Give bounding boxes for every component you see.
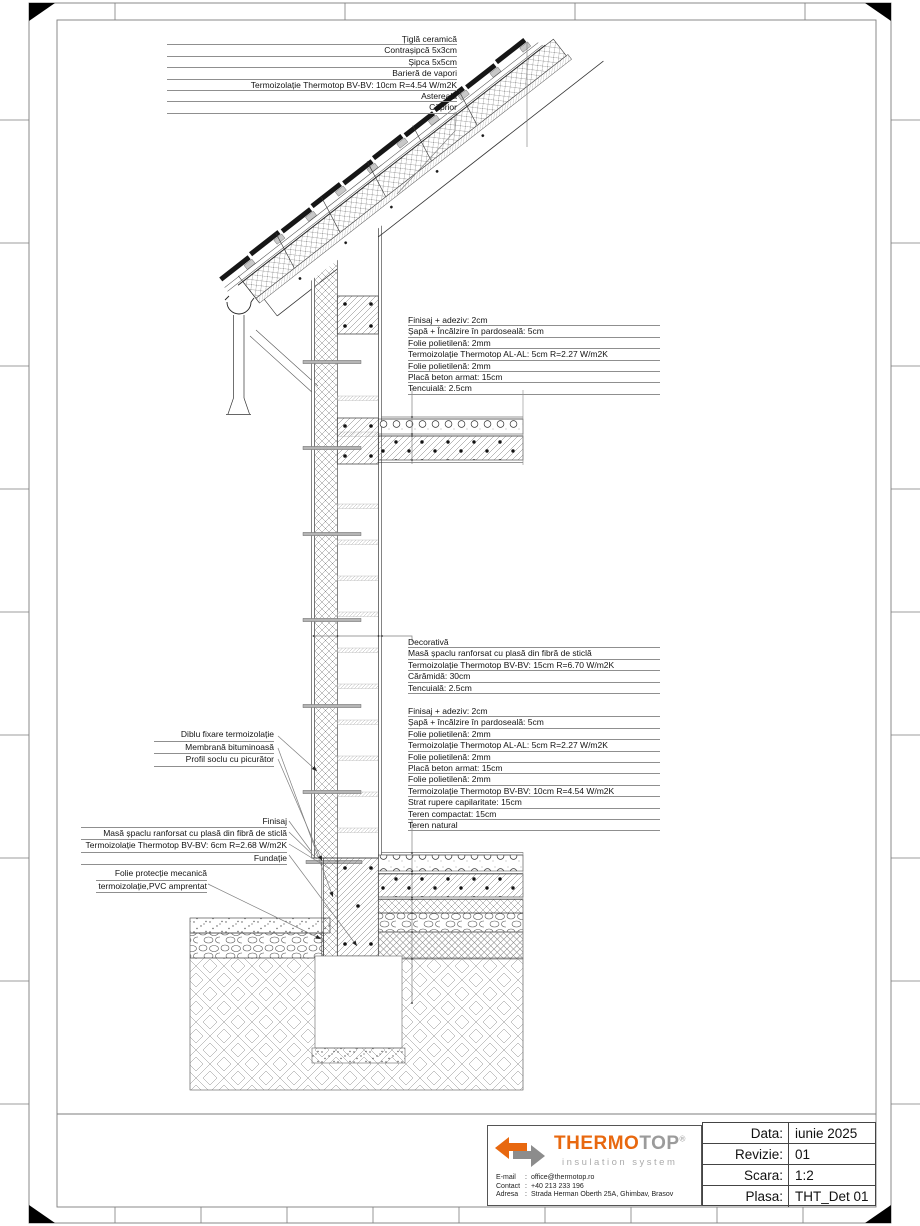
contact-phone-row: Contact:+40 213 233 196 xyxy=(496,1183,673,1192)
brand-name-primary: THERMO xyxy=(554,1133,639,1154)
annotation-line: Profil soclu cu picurător xyxy=(154,754,274,767)
annotation-line: Diblu fixare termoizolație xyxy=(154,729,274,742)
title-block-logo-panel: THERMOTOP® insulation system E-mail:offi… xyxy=(487,1125,702,1206)
contact-phone-value: +40 213 233 196 xyxy=(531,1183,584,1190)
detail-drawing xyxy=(0,0,920,1226)
downspout xyxy=(226,315,251,415)
ground-floor-layers-annotation: Finisaj + adeziv: 2cmȘapă + încălzire în… xyxy=(408,706,660,831)
annotation-line: Finisaj + adeziv: 2cm xyxy=(408,315,660,326)
annotation-line: Masă șpaclu ranforsat cu plasă din fibră… xyxy=(408,648,660,659)
annotation-line: Termoizolație Thermotop BV-BV: 6cm R=2.6… xyxy=(81,840,287,852)
annotation-line: Teren compactat: 15cm xyxy=(408,809,660,820)
annotation-line: Folie polietilenă: 2mm xyxy=(408,752,660,763)
title-block-info-table: Data: iunie 2025 Revizie: 01 Scara: 1:2 … xyxy=(702,1122,876,1206)
annotation-line: Termoizolație Thermotop AL-AL: 5cm R=2.2… xyxy=(408,349,660,360)
annotation-line: Termoizolație Thermotop AL-AL: 5cm R=2.2… xyxy=(408,740,660,751)
annotation-line: Folie protecție mecanică xyxy=(96,868,207,881)
upper-floor-slab xyxy=(378,417,523,463)
thermotop-logo-icon xyxy=(494,1135,546,1169)
contact-email-value: office@thermotop.ro xyxy=(531,1174,594,1181)
annotation-line: Astereală xyxy=(167,91,457,102)
annotation-line: Folie polietilenă: 2mm xyxy=(408,729,660,740)
fixing-labels-annotation: Diblu fixare termoizolațieMembrană bitum… xyxy=(154,729,274,767)
annotation-line: Șapă + încălzire în pardoseală: 5cm xyxy=(408,717,660,728)
annotation-line: Strat rupere capilaritate: 15cm xyxy=(408,797,660,808)
annotation-line: Țiglă ceramică xyxy=(167,34,457,45)
roof-layers-annotation: Țiglă ceramicăContrașipcă 5x3cmȘipca 5x5… xyxy=(167,34,457,114)
foundation-beam xyxy=(337,858,378,956)
annotation-line: Masă șpaclu ranforsat cu plasă din fibră… xyxy=(81,828,287,840)
annotation-line: Termoizolație Thermotop BV-BV: 15cm R=6.… xyxy=(408,660,660,671)
info-row-scale: Scara: 1:2 xyxy=(703,1165,875,1186)
ring-beam-floor xyxy=(337,418,378,464)
annotation-line: termoizolație,PVC amprentat xyxy=(96,881,207,894)
annotation-line: Termoizolație Thermotop BV-BV: 10cm R=4.… xyxy=(167,80,457,91)
annotation-line: Decorativă xyxy=(408,637,660,648)
annotation-line: Membrană bituminoasă xyxy=(154,742,274,755)
brand-name: THERMOTOP® xyxy=(554,1133,686,1155)
annotation-line: Placă beton armat: 15cm xyxy=(408,763,660,774)
annotation-line: Folie polietilenă: 2mm xyxy=(408,774,660,785)
annotation-line: Barieră de vapori xyxy=(167,68,457,79)
foundation-footing xyxy=(312,1048,405,1063)
registered-mark: ® xyxy=(680,1135,686,1144)
exterior-ground xyxy=(190,918,330,958)
annotation-line: Placă beton armat: 15cm xyxy=(408,372,660,383)
annotation-line: Contrașipcă 5x3cm xyxy=(167,45,457,56)
upper-floor-layers-annotation: Finisaj + adeziv: 2cmȘapă + Încălzire în… xyxy=(408,315,660,395)
protection-foil-annotation: Folie protecție mecanicătermoizolație,PV… xyxy=(96,868,207,893)
drawing-sheet: Țiglă ceramicăContrașipcă 5x3cmȘipca 5x5… xyxy=(0,0,920,1226)
info-row-revision: Revizie: 01 xyxy=(703,1144,875,1165)
brand-name-secondary: TOP xyxy=(639,1133,679,1154)
natural-soil xyxy=(190,956,523,1090)
contact-address-row: Adresa:Strada Herman Oberth 25A, Ghimbav… xyxy=(496,1191,673,1200)
annotation-line: Termoizolație Thermotop BV-BV: 10cm R=4.… xyxy=(408,786,660,797)
contact-info: E-mail:office@thermotop.ro Contact:+40 2… xyxy=(496,1174,673,1200)
ground-floor-slab xyxy=(378,853,523,960)
info-row-date: Data: iunie 2025 xyxy=(703,1123,875,1144)
info-row-sheet: Plasa: THT_Det 01 xyxy=(703,1186,875,1207)
annotation-line: Folie polietilenă: 2mm xyxy=(408,361,660,372)
annotation-line: Fundație xyxy=(81,853,287,865)
foundation-body xyxy=(315,956,402,1048)
annotation-line: Finisaj xyxy=(81,816,287,828)
annotation-line: Folie polietilenă: 2mm xyxy=(408,338,660,349)
annotation-line: Căprior xyxy=(167,102,457,113)
wall-layers-annotation: DecorativăMasă șpaclu ranforsat cu plasă… xyxy=(408,637,660,694)
annotation-line: Tencuială: 2.5cm xyxy=(408,383,660,394)
brand-tagline: insulation system xyxy=(562,1157,677,1168)
contact-email-row: E-mail:office@thermotop.ro xyxy=(496,1174,673,1183)
gutter xyxy=(225,296,254,314)
contact-address-value: Strada Herman Oberth 25A, Ghimbav, Braso… xyxy=(531,1191,673,1198)
annotation-line: Teren natural xyxy=(408,820,660,831)
annotation-line: Șapă + Încălzire în pardoseală: 5cm xyxy=(408,326,660,337)
annotation-line: Șipca 5x5cm xyxy=(167,57,457,68)
annotation-line: Tencuială: 2.5cm xyxy=(408,683,660,694)
annotation-line: Cărămidă: 30cm xyxy=(408,671,660,682)
ring-beam-top xyxy=(337,296,378,334)
annotation-line: Finisaj + adeziv: 2cm xyxy=(408,706,660,717)
plinth-layers-annotation: FinisajMasă șpaclu ranforsat cu plasă di… xyxy=(81,816,287,865)
